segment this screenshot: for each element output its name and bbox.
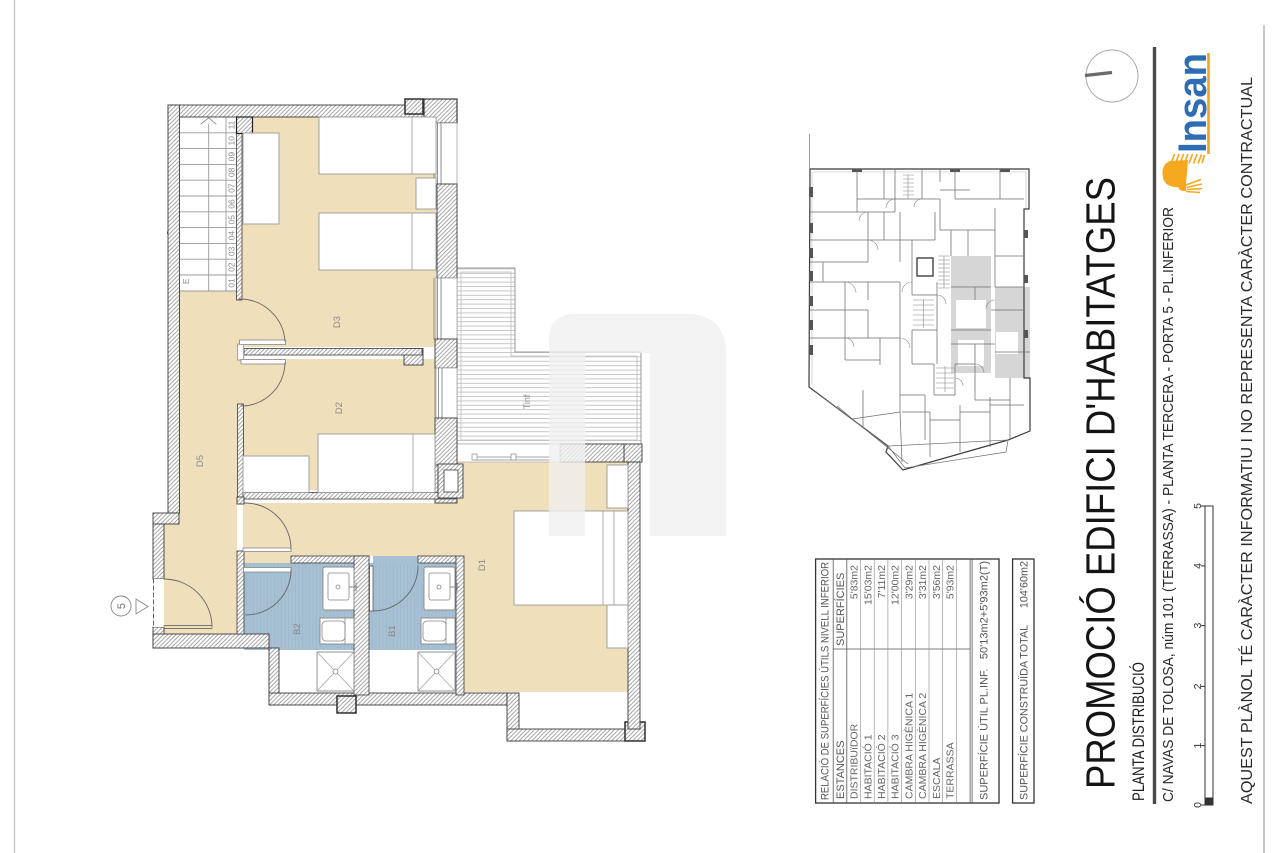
svg-text:HABITACIÓ 3: HABITACIÓ 3 <box>889 734 902 799</box>
svg-text:05: 05 <box>227 215 237 225</box>
svg-text:PLANTA DISTRIBUCIÓ: PLANTA DISTRIBUCIÓ <box>1129 662 1148 801</box>
svg-text:D2: D2 <box>334 402 345 414</box>
svg-text:50'13m2+5'93m2(T): 50'13m2+5'93m2(T) <box>979 561 991 659</box>
svg-text:3'31m2: 3'31m2 <box>917 565 929 599</box>
svg-text:11: 11 <box>227 120 237 129</box>
svg-text:TERRASSA: TERRASSA <box>945 742 957 799</box>
svg-text:HABITACIÓ 2: HABITACIÓ 2 <box>875 734 888 799</box>
svg-text:04: 04 <box>227 231 237 241</box>
svg-text:3'56m2: 3'56m2 <box>931 565 943 599</box>
svg-text:4: 4 <box>1192 563 1204 569</box>
svg-text:09: 09 <box>227 152 237 162</box>
svg-text:03: 03 <box>227 246 237 256</box>
svg-text:2: 2 <box>1192 683 1204 689</box>
svg-text:RELACIÓ DE SUPERFÍCIES ÚTIL: RELACIÓ DE SUPERFÍCIES ÚTILS NIVELL INFE… <box>819 562 832 800</box>
svg-text:1: 1 <box>1192 743 1204 749</box>
svg-text:AQUEST PLÀNOL TÉ CARÀCTER INFO: AQUEST PLÀNOL TÉ CARÀCTER INFORMATIU I N… <box>1239 77 1256 804</box>
svg-text:5'93m2: 5'93m2 <box>945 565 957 599</box>
svg-text:06: 06 <box>227 199 237 209</box>
svg-text:Tinf: Tinf <box>522 394 532 409</box>
svg-text:3'29m2: 3'29m2 <box>903 565 915 599</box>
svg-text:12'00m2: 12'00m2 <box>890 565 902 605</box>
svg-text:HABITACIÓ 1: HABITACIÓ 1 <box>861 734 874 799</box>
svg-text:15'03m2: 15'03m2 <box>862 565 874 605</box>
svg-text:E: E <box>182 279 191 284</box>
svg-text:0: 0 <box>1192 802 1204 808</box>
svg-text:B1: B1 <box>387 625 398 637</box>
svg-text:5: 5 <box>116 603 128 609</box>
svg-text:D5: D5 <box>195 455 206 467</box>
svg-text:5: 5 <box>1192 503 1204 509</box>
svg-text:B2: B2 <box>292 623 303 635</box>
svg-text:D3: D3 <box>332 316 343 328</box>
svg-text:02: 02 <box>227 262 237 272</box>
svg-text:C/ NAVAS DE TOLOSA, núm 101 (T: C/ NAVAS DE TOLOSA, núm 101 (TERRASSA) -… <box>1160 207 1177 802</box>
svg-text:CAMBRA HIGÈNICA 1: CAMBRA HIGÈNICA 1 <box>902 693 915 799</box>
svg-text:5'83m2: 5'83m2 <box>849 565 861 599</box>
svg-text:SUPERFÍCIE ÚTIL PL.INF.: SUPERFÍCIE ÚTIL PL.INF. <box>978 668 991 800</box>
svg-text:104'60m2: 104'60m2 <box>1019 561 1031 608</box>
svg-text:08: 08 <box>227 167 237 177</box>
svg-text:PROMOCIÓ EDIFICI D'HABITATGES: PROMOCIÓ EDIFICI D'HABITATGES <box>1078 177 1124 789</box>
svg-text:SUPERFÍCIES: SUPERFÍCIES <box>834 573 847 646</box>
svg-text:SUPERFÍCIE CONSTRUÏDA TOTAL: SUPERFÍCIE CONSTRUÏDA TOTAL <box>1018 625 1031 800</box>
svg-text:D1: D1 <box>477 559 488 571</box>
svg-text:DISTRIBUïDOR: DISTRIBUïDOR <box>849 723 861 799</box>
svg-text:07: 07 <box>227 183 237 193</box>
svg-text:01: 01 <box>227 278 237 288</box>
svg-text:10: 10 <box>227 136 237 146</box>
svg-text:CAMBRA HIGÈNICA 2: CAMBRA HIGÈNICA 2 <box>916 693 929 799</box>
svg-text:7'11m2: 7'11m2 <box>876 565 888 598</box>
svg-text:ESTANCES: ESTANCES <box>835 741 847 799</box>
svg-text:ESCALA: ESCALA <box>931 758 943 799</box>
svg-text:3: 3 <box>1192 623 1204 629</box>
